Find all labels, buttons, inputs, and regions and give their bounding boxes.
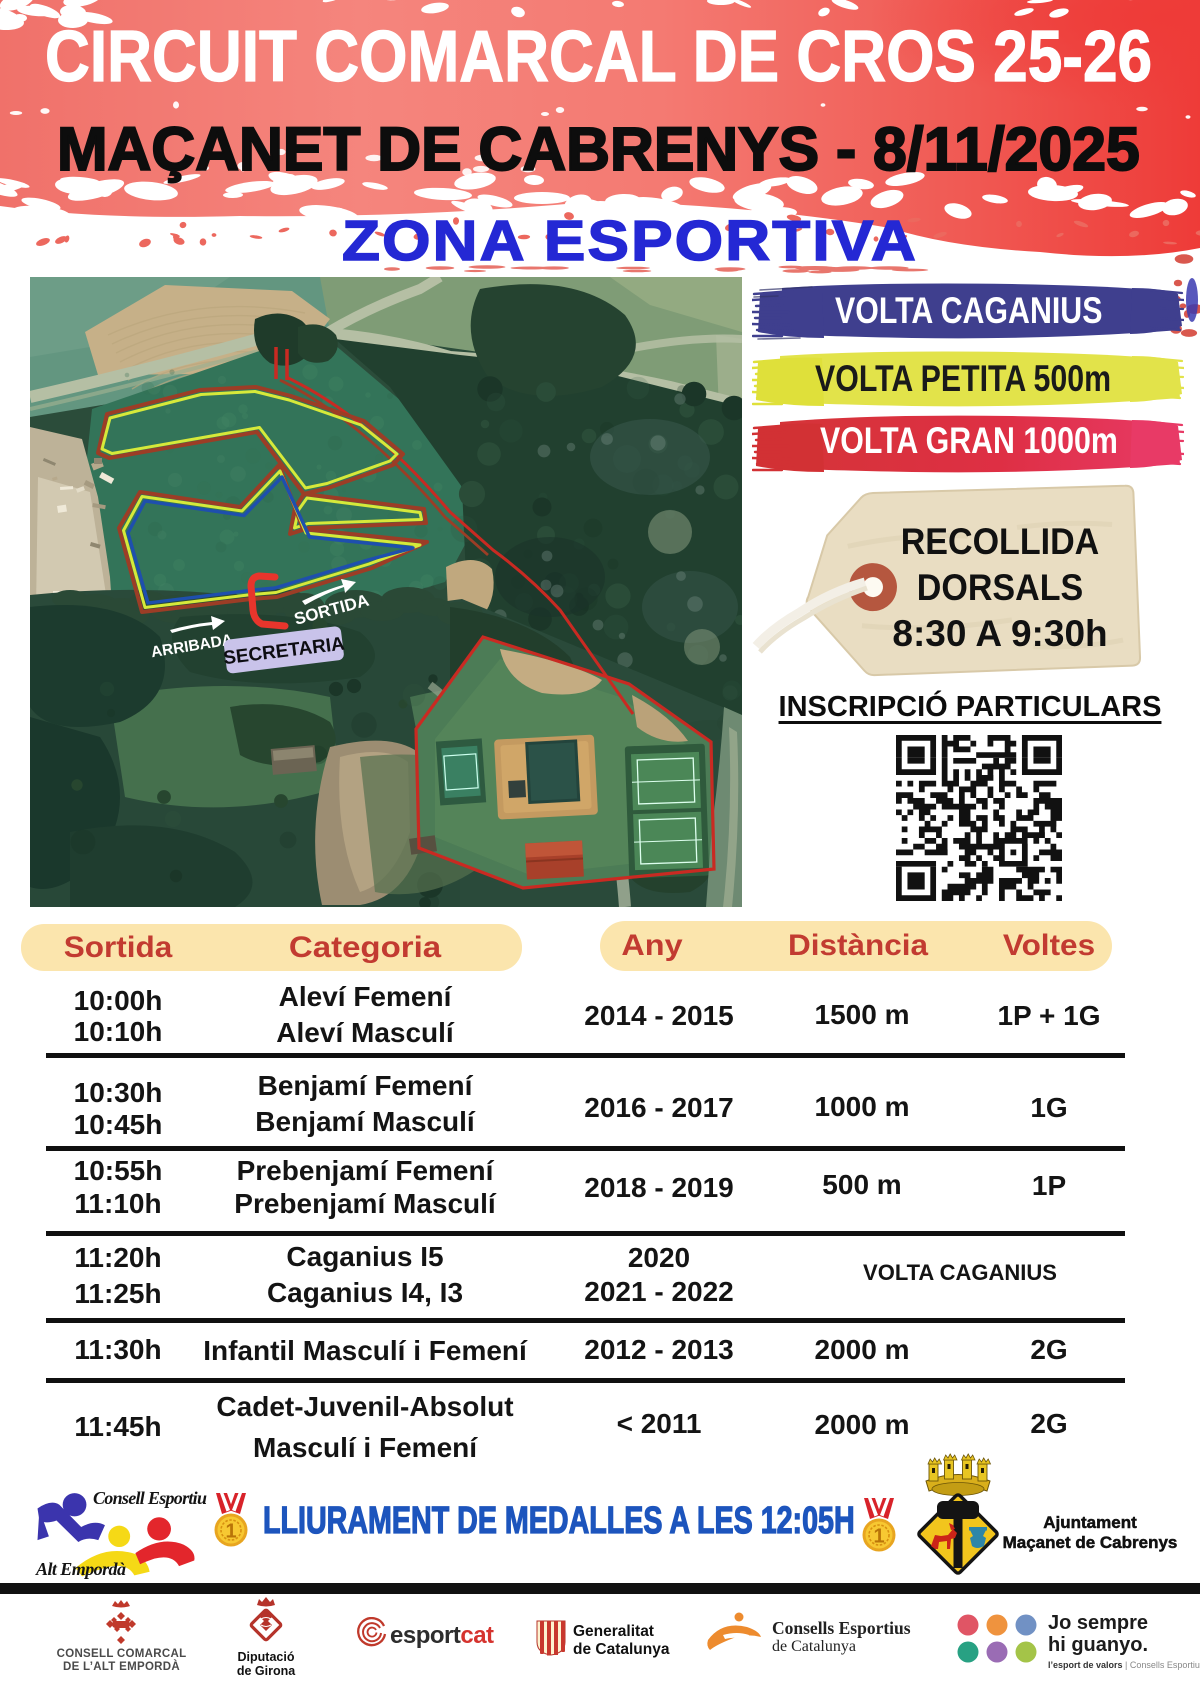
svg-text:Consell Esportiu: Consell Esportiu (93, 1488, 207, 1508)
svg-text:Alt Empordà: Alt Empordà (35, 1559, 126, 1579)
svg-text:1: 1 (873, 1526, 884, 1548)
svg-text:1: 1 (225, 1521, 236, 1543)
